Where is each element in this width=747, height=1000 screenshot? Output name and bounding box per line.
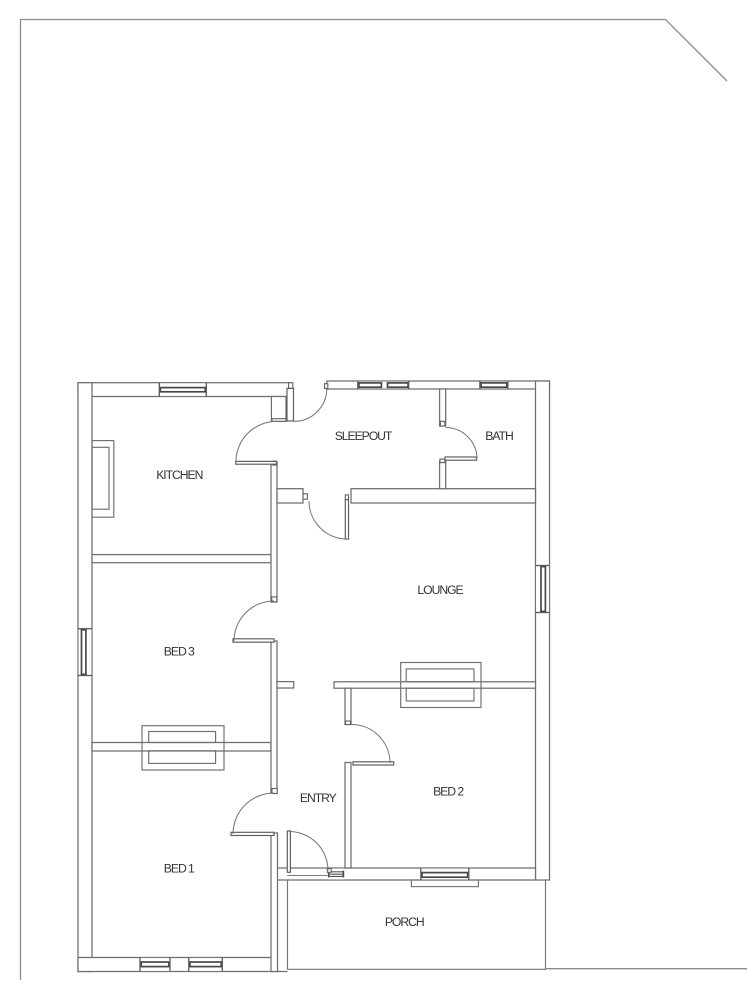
svg-text:PORCH: PORCH: [385, 915, 424, 929]
svg-text:BATH: BATH: [485, 429, 513, 443]
svg-text:BED 2: BED 2: [433, 785, 464, 799]
svg-text:LOUNGE: LOUNGE: [417, 583, 463, 597]
svg-text:SLEEPOUT: SLEEPOUT: [335, 429, 393, 443]
svg-text:ENTRY: ENTRY: [300, 791, 337, 805]
svg-text:BED 1: BED 1: [164, 862, 195, 876]
svg-text:BED 3: BED 3: [164, 645, 195, 659]
svg-text:KITCHEN: KITCHEN: [156, 468, 202, 482]
